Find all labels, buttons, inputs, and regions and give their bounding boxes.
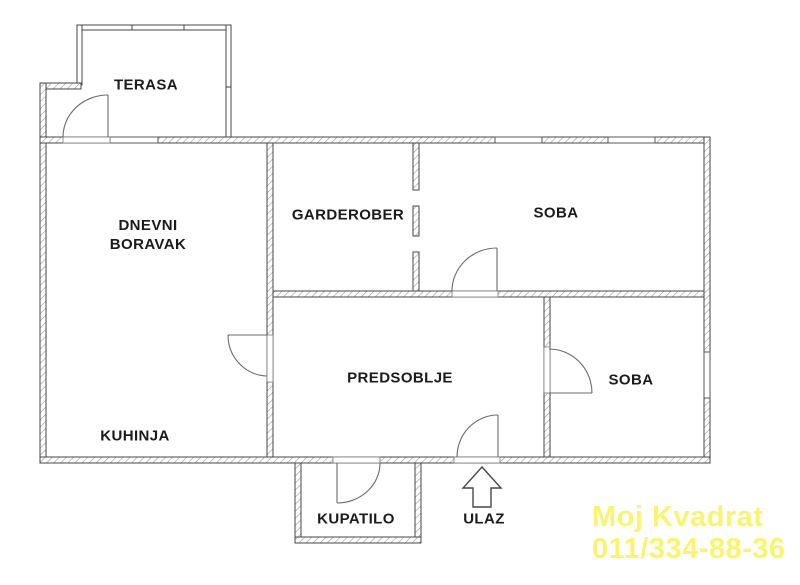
windows xyxy=(110,137,710,398)
room-label-terasa: TERASA xyxy=(114,77,178,94)
room-label-ulaz: ULAZ xyxy=(463,511,505,528)
threshold-soba-bottom-door xyxy=(544,347,550,393)
door-soba-bottom xyxy=(549,349,592,393)
room-label-soba-bottom: SOBA xyxy=(609,372,654,389)
watermark-brand: Moj Kvadrat xyxy=(592,501,786,533)
wall-garderober-segment-1 xyxy=(413,143,419,190)
threshold-terrace-door xyxy=(63,137,110,143)
terrace-parapet-top xyxy=(77,25,231,30)
threshold-entrance-door xyxy=(454,457,500,463)
room-label-kupatilo: KUPATILO xyxy=(317,511,395,528)
wall-kupatilo-left xyxy=(295,463,301,543)
wall-kupatilo-right xyxy=(415,463,421,537)
threshold-kitchen-door xyxy=(267,335,273,382)
room-label-predsoblje: PREDSOBLJE xyxy=(347,370,453,387)
window-livingroom-terrace xyxy=(110,137,158,143)
door-entrance xyxy=(457,415,498,457)
door-kitchen xyxy=(228,335,267,376)
door-thresholds xyxy=(63,137,550,463)
watermark: Moj Kvadrat 011/334-88-36 xyxy=(592,501,786,565)
door-soba-top xyxy=(452,248,497,291)
room-label-soba-top: SOBA xyxy=(534,205,579,222)
watermark-phone: 011/334-88-36 xyxy=(592,533,786,565)
wall-right xyxy=(704,137,710,463)
room-label-dnevni-boravak: DNEVNI BORAVAK xyxy=(93,216,203,254)
entrance-arrow-icon xyxy=(463,467,501,507)
window-soba-top-2 xyxy=(608,137,655,143)
window-soba-top-1 xyxy=(495,137,542,143)
wall-livingroom-hall xyxy=(267,143,273,457)
terrace-parapet-right xyxy=(226,25,231,137)
wall-garderober-segment-3 xyxy=(413,252,419,291)
window-soba-bottom xyxy=(704,352,710,398)
wall-garderober-segment-2 xyxy=(413,206,419,236)
room-label-kuhinja: KUHINJA xyxy=(100,428,169,445)
terrace-parapet-left xyxy=(77,25,82,85)
door-kupatilo xyxy=(337,463,380,503)
wall-kupatilo-bottom xyxy=(295,537,421,543)
threshold-kupatilo-door xyxy=(333,457,380,463)
door-terrace xyxy=(63,95,108,137)
room-label-garderober: GARDEROBER xyxy=(292,207,404,224)
floor-plan: TERASA DNEVNI BORAVAK GARDEROBER SOBA PR… xyxy=(0,0,800,585)
threshold-soba-top-door xyxy=(452,291,498,297)
